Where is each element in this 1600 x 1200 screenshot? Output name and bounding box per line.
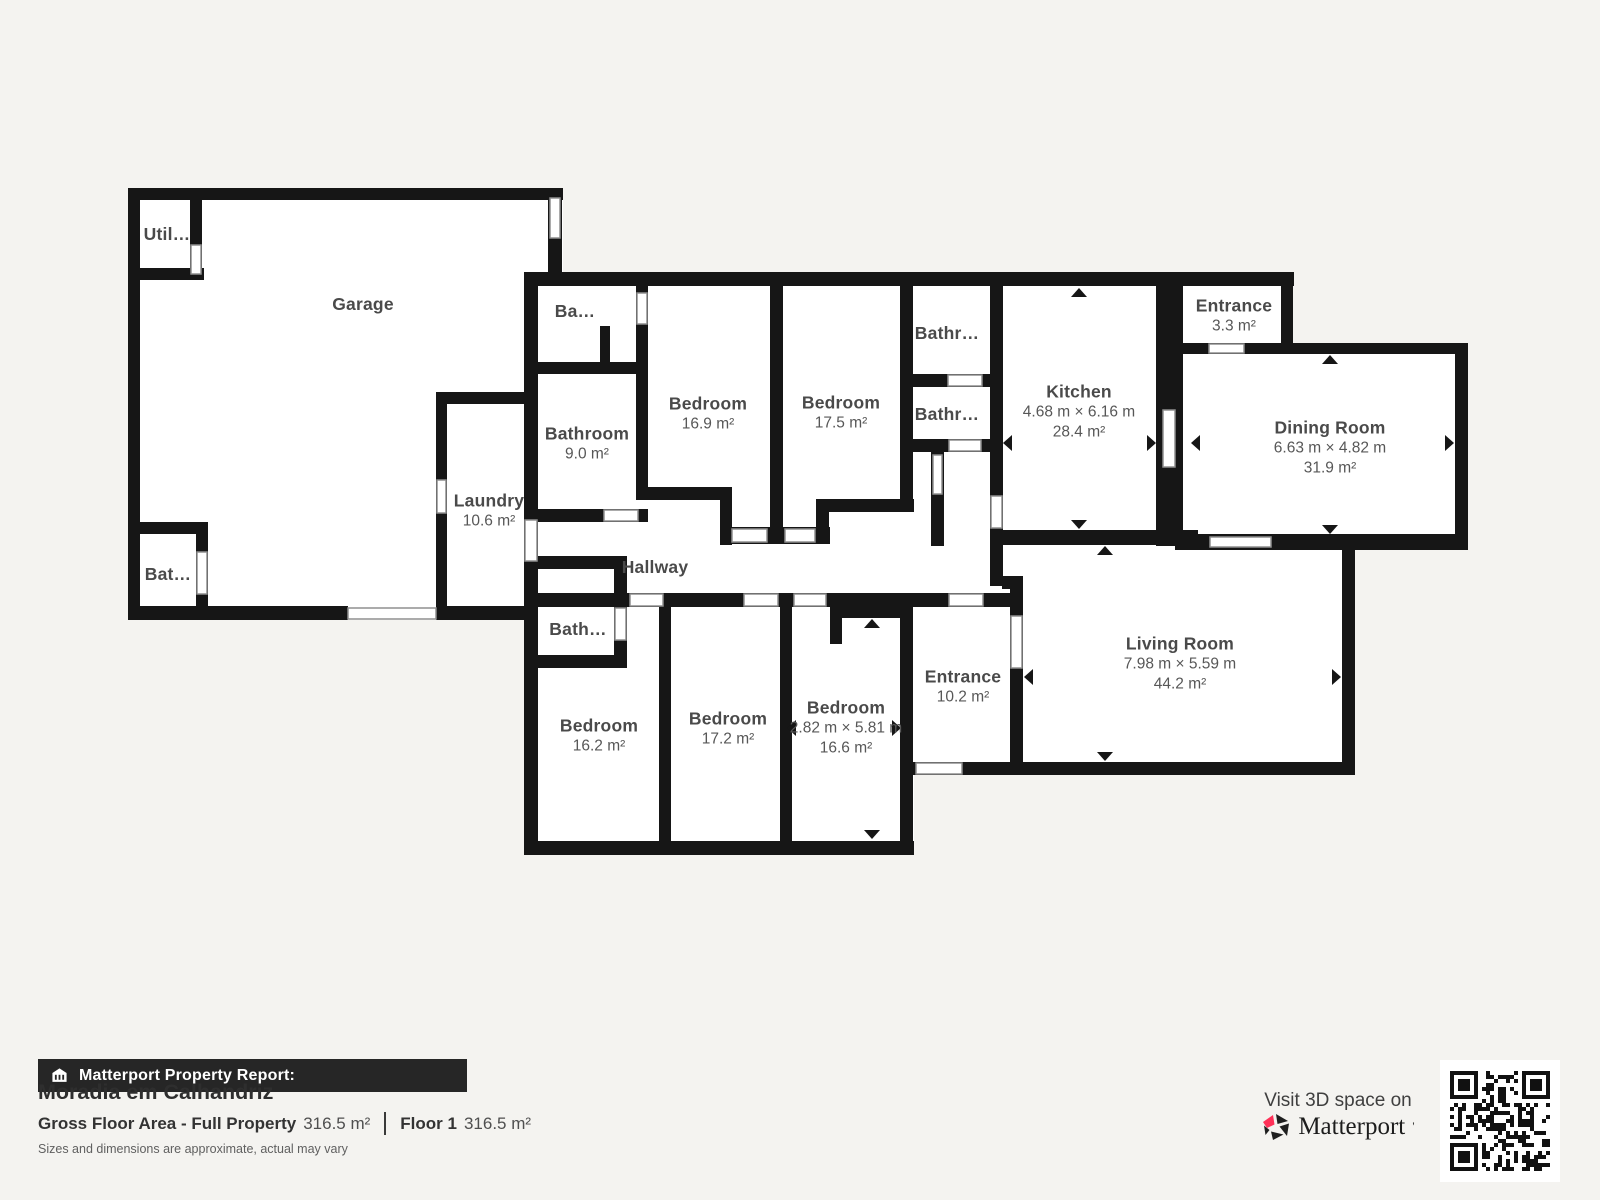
trademark-tick: ’ bbox=[1412, 1122, 1414, 1132]
room-label-living-room: Living Room7.98 m × 5.59 m44.2 m² bbox=[1124, 633, 1236, 695]
room-label-bedroom-175: Bedroom17.5 m² bbox=[802, 393, 880, 434]
room-label-bathr-mid: Bathr… bbox=[915, 404, 979, 425]
stats-divider bbox=[384, 1112, 386, 1135]
room-label-bathr-top: Bathr… bbox=[915, 323, 979, 344]
matterport-wordmark: Matterport bbox=[1298, 1113, 1405, 1141]
matterport-floorplan-report: Garage Util… Bat… Ba… Bathroom9.0 m² Lau… bbox=[0, 0, 1600, 1200]
disclaimer-text: Sizes and dimensions are approximate, ac… bbox=[38, 1142, 348, 1156]
room-label-kitchen: Kitchen4.68 m × 6.16 m28.4 m² bbox=[1023, 381, 1135, 443]
room-label-bedroom-172: Bedroom17.2 m² bbox=[689, 709, 767, 750]
matterport-logo-icon bbox=[1261, 1112, 1291, 1142]
room-label-bathroom: Bathroom9.0 m² bbox=[545, 424, 629, 465]
qr-pattern bbox=[1450, 1071, 1550, 1171]
room-label-bedroom-166: Bedroom2.82 m × 5.81 m16.6 m² bbox=[790, 697, 902, 759]
room-label-hallway: Hallway bbox=[622, 557, 689, 578]
gross-floor-area-value: 316.5 m² bbox=[303, 1114, 370, 1134]
floor-area-stats: Gross Floor Area - Full Property 316.5 m… bbox=[38, 1112, 531, 1135]
room-label-laundry: Laundry10.6 m² bbox=[454, 491, 524, 532]
room-label-garage: Garage bbox=[332, 294, 394, 315]
floorplan bbox=[0, 0, 1600, 1200]
floor-label: Floor 1 bbox=[400, 1114, 457, 1134]
room-label-bedroom-169: Bedroom16.9 m² bbox=[669, 394, 747, 435]
room-label-ba-small: Ba… bbox=[555, 301, 595, 322]
gross-floor-area-label: Gross Floor Area - Full Property bbox=[38, 1114, 296, 1134]
room-label-bat-small: Bat… bbox=[145, 564, 192, 585]
matterport-brand: Matterport’ bbox=[1255, 1112, 1421, 1142]
visit-3d-text: Visit 3D space on bbox=[1255, 1090, 1421, 1112]
room-label-bath-lower: Bath… bbox=[549, 619, 606, 640]
property-name: Moradia em Calhandriz bbox=[38, 1080, 273, 1105]
room-label-entrance-small: Entrance3.3 m² bbox=[1196, 296, 1273, 337]
room-label-bedroom-162: Bedroom16.2 m² bbox=[560, 716, 638, 757]
floor-value: 316.5 m² bbox=[464, 1114, 531, 1134]
room-label-utility: Util… bbox=[144, 224, 191, 245]
room-label-entrance-main: Entrance10.2 m² bbox=[925, 667, 1002, 708]
qr-code bbox=[1440, 1060, 1560, 1182]
room-label-dining-room: Dining Room6.63 m × 4.82 m31.9 m² bbox=[1274, 417, 1386, 479]
